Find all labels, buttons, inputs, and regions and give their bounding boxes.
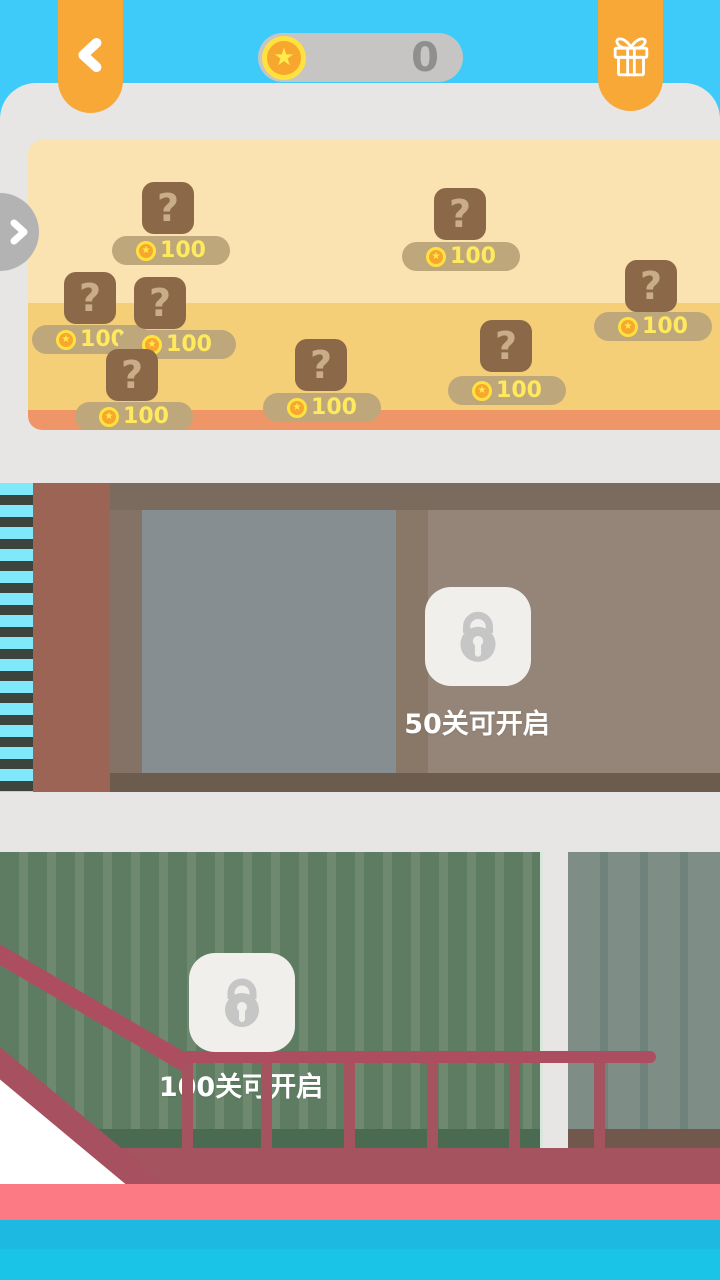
coin-icon: ★ — [426, 247, 446, 267]
question-mark: ? — [157, 189, 179, 227]
railing-top-bar — [172, 1051, 656, 1063]
crate-shop-panel: ★100 ? ★100 ? ★100 ? ★100 ? ★100 ? ★100 … — [28, 140, 720, 430]
coin-icon: ★ — [136, 241, 156, 261]
chevron-right-icon — [5, 217, 33, 251]
coin-counter: ★ 0 — [258, 33, 463, 82]
landing-floor-bar — [80, 1148, 720, 1184]
chevron-left-icon — [69, 33, 113, 81]
price-pill: ★100 — [402, 242, 520, 271]
striped-wall-column — [0, 483, 33, 792]
question-mark: ? — [310, 346, 332, 384]
price-pill: ★100 — [75, 402, 193, 430]
question-mark: ? — [640, 267, 662, 305]
question-mark: ? — [121, 356, 143, 394]
mystery-crate[interactable]: ? — [625, 260, 677, 312]
price-pill: ★100 — [594, 312, 712, 341]
railing-post — [182, 1063, 193, 1148]
mystery-crate[interactable]: ? — [480, 320, 532, 372]
question-mark: ? — [449, 195, 471, 233]
lock-icon — [212, 971, 272, 1035]
back-button[interactable] — [58, 0, 123, 113]
window — [142, 510, 396, 773]
mystery-crate[interactable]: ? — [142, 182, 194, 234]
coin-icon: ★ — [99, 407, 119, 427]
mystery-crate[interactable]: ? — [434, 188, 486, 240]
railing-post — [344, 1063, 355, 1148]
price-label: 100 — [123, 406, 169, 428]
mystery-crate[interactable]: ? — [64, 272, 116, 324]
star-icon: ★ — [273, 45, 295, 69]
wall-left — [110, 510, 142, 773]
question-mark: ? — [149, 284, 171, 322]
coin-icon: ★ — [287, 398, 307, 418]
coin-icon: ★ — [618, 317, 638, 337]
price-label: 100 — [160, 240, 206, 262]
wall-base-band-right — [568, 1129, 720, 1148]
unlock-text: 50关可开启 — [404, 702, 550, 741]
mystery-crate[interactable]: ? — [295, 339, 347, 391]
price-label: 100 — [450, 246, 496, 268]
question-mark: ? — [79, 279, 101, 317]
coin-icon: ★ — [262, 36, 306, 80]
railing-post — [594, 1063, 605, 1148]
price-label: 100 — [642, 316, 688, 338]
lock-card[interactable] — [425, 587, 531, 686]
mystery-crate[interactable]: ? — [106, 349, 158, 401]
locked-scene-50[interactable]: 50关可开启 — [0, 483, 720, 792]
price-label: 100 — [166, 334, 212, 356]
lock-card[interactable] — [189, 953, 295, 1052]
gift-button[interactable] — [598, 0, 663, 111]
corrugated-wall-right — [568, 852, 720, 1129]
coin-icon: ★ — [56, 330, 76, 350]
floor-pink-strip — [0, 1184, 720, 1220]
floor-strip — [110, 773, 720, 792]
price-label: 100 — [311, 397, 357, 419]
price-pill: ★100 — [112, 236, 230, 265]
water-strip-light — [0, 1249, 720, 1280]
wall-top-strip — [110, 483, 720, 510]
mystery-crate[interactable]: ? — [134, 277, 186, 329]
railing-post — [427, 1063, 438, 1148]
railing-post — [261, 1063, 272, 1148]
coin-count: 0 — [411, 35, 463, 81]
price-pill: ★100 — [263, 393, 381, 422]
price-label: 100 — [496, 380, 542, 402]
price-pill: ★100 — [448, 376, 566, 405]
question-mark: ? — [495, 327, 517, 365]
water-strip-dark — [0, 1220, 720, 1249]
lock-icon — [447, 604, 509, 670]
locked-scene-100[interactable]: 100关可开启 — [0, 852, 720, 1280]
railing-post — [509, 1063, 520, 1148]
coin-icon: ★ — [472, 381, 492, 401]
red-wall-column — [33, 483, 110, 792]
wall-divider — [540, 852, 568, 1148]
gift-icon — [606, 29, 656, 83]
